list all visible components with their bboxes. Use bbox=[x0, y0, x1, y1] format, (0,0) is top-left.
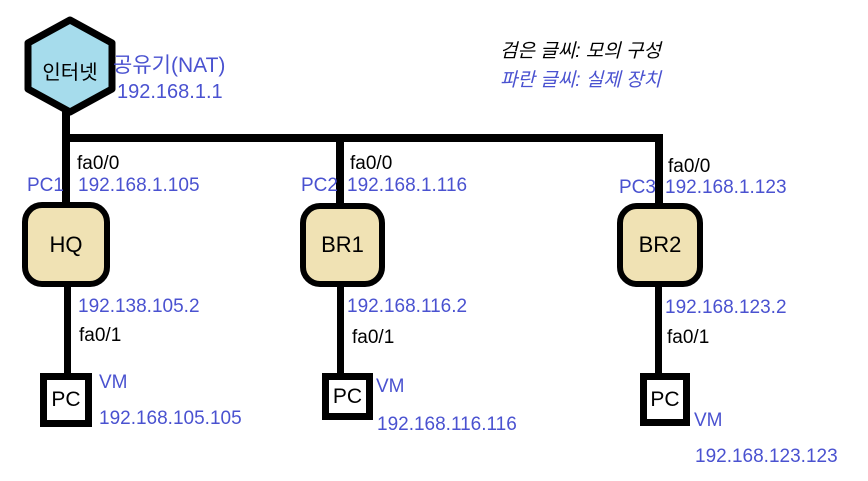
br2-vm-label: VM bbox=[694, 410, 723, 432]
br1-vm-label: VM bbox=[376, 376, 405, 398]
nat-device-label: 공유기(NAT) bbox=[113, 54, 225, 78]
hq-vm-label: VM bbox=[99, 372, 128, 394]
pc-box-1: PC bbox=[40, 373, 92, 427]
hq-uplink-interface: fa0/0 bbox=[77, 153, 119, 175]
br2-lan-interface: fa0/1 bbox=[667, 327, 709, 349]
router-br2-label: BR2 bbox=[639, 232, 682, 258]
br1-to-pc-line bbox=[337, 283, 344, 375]
router-br2: BR2 bbox=[617, 203, 703, 287]
router-hq-label: HQ bbox=[50, 232, 83, 258]
br2-vm-ip: 192.168.123.123 bbox=[695, 446, 838, 468]
legend-black-note: 검은 글씨: 모의 구성 bbox=[500, 41, 661, 63]
hq-to-pc-line bbox=[64, 283, 71, 376]
network-topology-diagram: 인터넷 공유기(NAT) 192.168.1.1 검은 글씨: 모의 구성 파란… bbox=[0, 0, 868, 481]
legend-blue-note: 파란 글씨: 실제 장치 bbox=[500, 70, 661, 92]
br2-uplink-interface: fa0/0 bbox=[668, 156, 710, 178]
br1-host-pc: PC2 bbox=[301, 175, 338, 197]
pc-box-1-label: PC bbox=[51, 388, 80, 412]
br2-to-pc-line bbox=[655, 283, 662, 376]
br1-vm-ip: 192.168.116.116 bbox=[377, 414, 517, 436]
br1-uplink-ip: 192.168.1.116 bbox=[347, 175, 467, 197]
br1-lan-ip: 192.168.116.2 bbox=[347, 296, 467, 318]
hq-uplink-ip: 192.168.1.105 bbox=[78, 175, 200, 197]
br2-lan-ip: 192.168.123.2 bbox=[665, 297, 787, 319]
br1-uplink-interface: fa0/0 bbox=[350, 153, 392, 175]
pc-box-3: PC bbox=[640, 373, 690, 426]
hq-host-pc: PC1 bbox=[27, 175, 64, 197]
br2-host-pc: PC3 bbox=[619, 177, 656, 199]
hq-vm-ip: 192.168.105.105 bbox=[99, 408, 242, 430]
hq-lan-interface: fa0/1 bbox=[79, 325, 121, 347]
internet-label: 인터넷 bbox=[24, 56, 116, 85]
bus-to-br2-line bbox=[655, 140, 663, 207]
router-br1-label: BR1 bbox=[321, 232, 364, 258]
pc-box-2-label: PC bbox=[333, 385, 362, 409]
br1-lan-interface: fa0/1 bbox=[352, 327, 394, 349]
pc-box-3-label: PC bbox=[650, 388, 679, 412]
br2-uplink-ip: 192.168.1.123 bbox=[665, 177, 787, 199]
router-hq: HQ bbox=[22, 202, 110, 287]
nat-ip: 192.168.1.1 bbox=[117, 81, 223, 104]
router-br1: BR1 bbox=[300, 203, 385, 287]
bus-line bbox=[62, 134, 663, 142]
hq-lan-ip: 192.138.105.2 bbox=[78, 296, 200, 318]
pc-box-2: PC bbox=[322, 373, 373, 420]
